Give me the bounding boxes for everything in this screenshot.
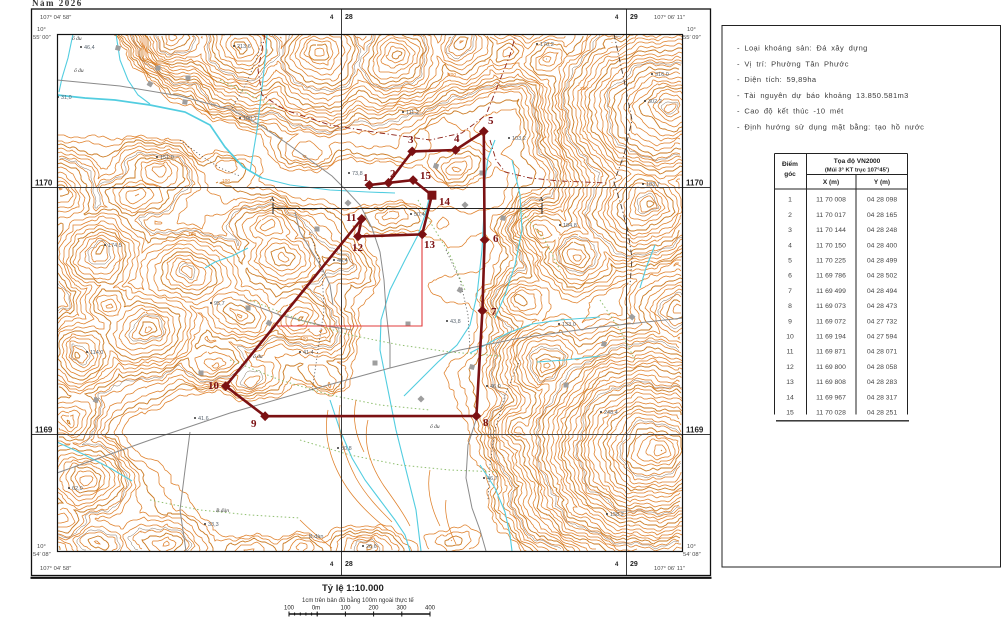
svg-text:Năm 2026: Năm 2026 [32, 0, 83, 8]
svg-text:46,4: 46,4 [84, 45, 95, 51]
svg-text:1170: 1170 [686, 179, 704, 188]
svg-text:316,0: 316,0 [655, 72, 669, 78]
svg-text:28: 28 [345, 14, 353, 21]
svg-text:10°: 10° [687, 544, 696, 550]
svg-text:04 28 251: 04 28 251 [867, 410, 897, 417]
svg-text:10: 10 [786, 334, 794, 341]
svg-text:158,2: 158,2 [610, 512, 624, 518]
svg-text:46,7: 46,7 [487, 476, 498, 482]
svg-text:11 70 017: 11 70 017 [816, 212, 846, 219]
svg-text:04 28 283: 04 28 283 [867, 379, 897, 386]
svg-text:5: 5 [488, 115, 494, 127]
svg-text:11 69 967: 11 69 967 [816, 394, 846, 401]
svg-text:184,8: 184,8 [563, 223, 577, 229]
svg-text:13: 13 [786, 379, 794, 386]
svg-text:11 70 225: 11 70 225 [816, 258, 846, 265]
svg-text:248,4: 248,4 [604, 410, 618, 416]
svg-text:B.đàn: B.đàn [216, 508, 229, 514]
svg-text:04 28 502: 04 28 502 [867, 273, 897, 280]
svg-text:46,4: 46,4 [337, 258, 348, 264]
svg-text:30,8: 30,8 [341, 446, 352, 452]
svg-text:8: 8 [483, 417, 489, 429]
svg-text:10°: 10° [687, 27, 696, 33]
svg-text:11 69 499: 11 69 499 [816, 288, 846, 295]
svg-text:6: 6 [493, 233, 499, 245]
svg-text:54′ 08″: 54′ 08″ [683, 552, 701, 558]
svg-text:213,6: 213,6 [237, 44, 251, 50]
svg-text:0m: 0m [312, 606, 320, 612]
svg-text:04 28 071: 04 28 071 [867, 349, 897, 356]
svg-text:11 69 800: 11 69 800 [816, 364, 846, 371]
svg-text:11 69 871: 11 69 871 [816, 349, 846, 356]
svg-text:11 70 150: 11 70 150 [816, 242, 846, 249]
svg-text:103,2: 103,2 [512, 136, 526, 142]
svg-text:151,0: 151,0 [160, 155, 174, 161]
svg-text:183,7: 183,7 [646, 182, 660, 188]
svg-text:(Múi 3° KT trục 107°45′): (Múi 3° KT trục 107°45′) [825, 168, 889, 174]
svg-text:11 70 028: 11 70 028 [816, 410, 846, 417]
svg-text:ổ đu: ổ đu [253, 353, 263, 360]
svg-text:107° 06′ 11″: 107° 06′ 11″ [654, 566, 685, 572]
svg-text:111,2: 111,2 [406, 110, 419, 116]
svg-text:1: 1 [363, 172, 369, 184]
svg-text:100: 100 [340, 606, 351, 612]
svg-text:100: 100 [300, 336, 308, 342]
svg-text:1170: 1170 [35, 179, 53, 188]
svg-text:400: 400 [425, 606, 436, 612]
svg-text:300: 300 [396, 606, 407, 612]
svg-text:55′ 09″: 55′ 09″ [683, 35, 701, 41]
svg-text:X (m): X (m) [823, 179, 839, 186]
svg-text:1169: 1169 [686, 426, 704, 435]
svg-text:- Loại khoáng sản: Đá xây dựng: - Loại khoáng sản: Đá xây dựng [737, 44, 868, 53]
svg-text:ổ đu: ổ đu [74, 67, 84, 74]
svg-text:107° 06′ 11″: 107° 06′ 11″ [654, 15, 685, 21]
svg-text:13: 13 [424, 239, 436, 251]
svg-text:43,8: 43,8 [450, 319, 461, 325]
svg-text:04 28 165: 04 28 165 [867, 212, 897, 219]
svg-text:Y (m): Y (m) [874, 179, 890, 186]
svg-text:04 28 058: 04 28 058 [867, 364, 897, 371]
svg-text:50,4: 50,4 [414, 212, 425, 218]
svg-text:73,8: 73,8 [352, 171, 363, 177]
svg-text:04 27 732: 04 27 732 [867, 318, 897, 325]
svg-text:- Tài nguyên dự báo khoảng 13.: - Tài nguyên dự báo khoảng 13.850.581m3 [737, 91, 909, 100]
svg-text:ổ đu: ổ đu [430, 423, 440, 430]
svg-text:41,6: 41,6 [198, 416, 209, 422]
svg-text:14: 14 [439, 196, 451, 208]
svg-text:100: 100 [284, 606, 295, 612]
svg-text:11: 11 [346, 212, 356, 224]
svg-text:29: 29 [630, 561, 638, 568]
svg-text:9: 9 [251, 418, 257, 430]
svg-text:46,0: 46,0 [490, 384, 501, 390]
svg-text:12: 12 [352, 242, 364, 254]
svg-text:5: 5 [788, 258, 792, 265]
svg-text:04 28 499: 04 28 499 [867, 258, 897, 265]
svg-text:3: 3 [788, 227, 792, 234]
svg-text:31,0: 31,0 [61, 95, 72, 101]
svg-text:174,5: 174,5 [108, 243, 122, 249]
svg-text:2: 2 [788, 212, 792, 219]
svg-text:04 28 248: 04 28 248 [867, 227, 897, 234]
svg-text:1cm trên bản đồ bằng 100m ngoà: 1cm trên bản đồ bằng 100m ngoài thực tế [302, 597, 414, 604]
svg-text:Tỷ lệ 1:10.000: Tỷ lệ 1:10.000 [322, 583, 384, 594]
svg-text:11 69 072: 11 69 072 [816, 318, 846, 325]
svg-text:107° 04′ 58″: 107° 04′ 58″ [40, 15, 71, 21]
svg-text:- Định hướng sử dụng mặt bằng:: - Định hướng sử dụng mặt bằng: tạo hồ nư… [737, 123, 924, 132]
svg-text:33,3: 33,3 [208, 522, 219, 528]
svg-text:55′ 00″: 55′ 00″ [33, 35, 51, 41]
svg-text:107° 04′ 58″: 107° 04′ 58″ [40, 566, 71, 572]
svg-text:28: 28 [345, 561, 353, 568]
svg-text:10°: 10° [37, 544, 46, 550]
svg-text:11 69 194: 11 69 194 [816, 334, 846, 341]
svg-text:62,0: 62,0 [72, 486, 83, 492]
svg-text:200: 200 [448, 72, 456, 78]
svg-text:1169: 1169 [35, 426, 53, 435]
svg-text:7: 7 [788, 288, 792, 295]
svg-text:- Vị trí: Phường Tân Phước: - Vị trí: Phường Tân Phước [737, 59, 849, 68]
svg-text:11 70 008: 11 70 008 [816, 197, 846, 204]
svg-text:Điểm: Điểm [782, 160, 798, 168]
svg-text:11 69 073: 11 69 073 [816, 303, 846, 310]
svg-text:A: A [270, 197, 275, 203]
svg-text:04 27 594: 04 27 594 [867, 334, 897, 341]
svg-text:15: 15 [786, 410, 794, 417]
svg-text:3: 3 [408, 134, 414, 146]
svg-text:11 70 144: 11 70 144 [816, 227, 846, 234]
svg-text:8: 8 [788, 303, 792, 310]
svg-text:41,4: 41,4 [303, 350, 314, 356]
svg-text:114,0: 114,0 [90, 350, 103, 356]
svg-text:133,0: 133,0 [562, 322, 576, 328]
svg-text:302,2: 302,2 [648, 99, 662, 105]
svg-text:- Diện tích: 59,89ha: - Diện tích: 59,89ha [737, 75, 817, 84]
svg-text:- Cao độ kết thúc -10 mét: - Cao độ kết thúc -10 mét [737, 107, 844, 116]
svg-text:04 28 317: 04 28 317 [867, 394, 897, 401]
svg-text:6: 6 [788, 273, 792, 280]
svg-text:4: 4 [788, 242, 792, 249]
svg-text:10: 10 [208, 380, 220, 392]
svg-text:A: A [539, 197, 544, 203]
svg-text:100: 100 [222, 178, 230, 184]
svg-text:14: 14 [786, 394, 794, 401]
svg-text:04 28 400: 04 28 400 [867, 242, 897, 249]
svg-text:100,7: 100,7 [243, 116, 257, 122]
svg-text:10°: 10° [37, 27, 46, 33]
svg-text:7: 7 [491, 306, 497, 318]
svg-text:12: 12 [786, 364, 794, 371]
svg-text:150: 150 [188, 232, 196, 238]
svg-text:170,2: 170,2 [540, 42, 554, 48]
svg-text:ổ đu: ổ đu [72, 35, 82, 42]
svg-text:29: 29 [630, 14, 638, 21]
svg-text:250: 250 [580, 86, 588, 92]
svg-text:04 28 098: 04 28 098 [867, 197, 897, 204]
svg-text:200: 200 [368, 606, 379, 612]
svg-text:54′ 08″: 54′ 08″ [33, 552, 51, 558]
svg-text:góc: góc [784, 171, 796, 178]
svg-text:Tọa độ VN2000: Tọa độ VN2000 [834, 158, 881, 165]
svg-text:2: 2 [390, 168, 396, 180]
svg-text:11: 11 [786, 349, 793, 356]
svg-text:B.đàn: B.đàn [309, 534, 323, 540]
svg-text:9: 9 [788, 318, 792, 325]
svg-text:04 28 473: 04 28 473 [867, 303, 897, 310]
svg-text:1: 1 [788, 197, 792, 204]
svg-text:15: 15 [420, 170, 432, 182]
svg-text:04 28 494: 04 28 494 [867, 288, 897, 295]
svg-text:11 69 786: 11 69 786 [816, 273, 846, 280]
svg-text:4: 4 [454, 133, 460, 145]
svg-text:26,6: 26,6 [366, 544, 377, 550]
svg-text:95,7: 95,7 [214, 301, 225, 307]
svg-text:11 69 808: 11 69 808 [816, 379, 846, 386]
